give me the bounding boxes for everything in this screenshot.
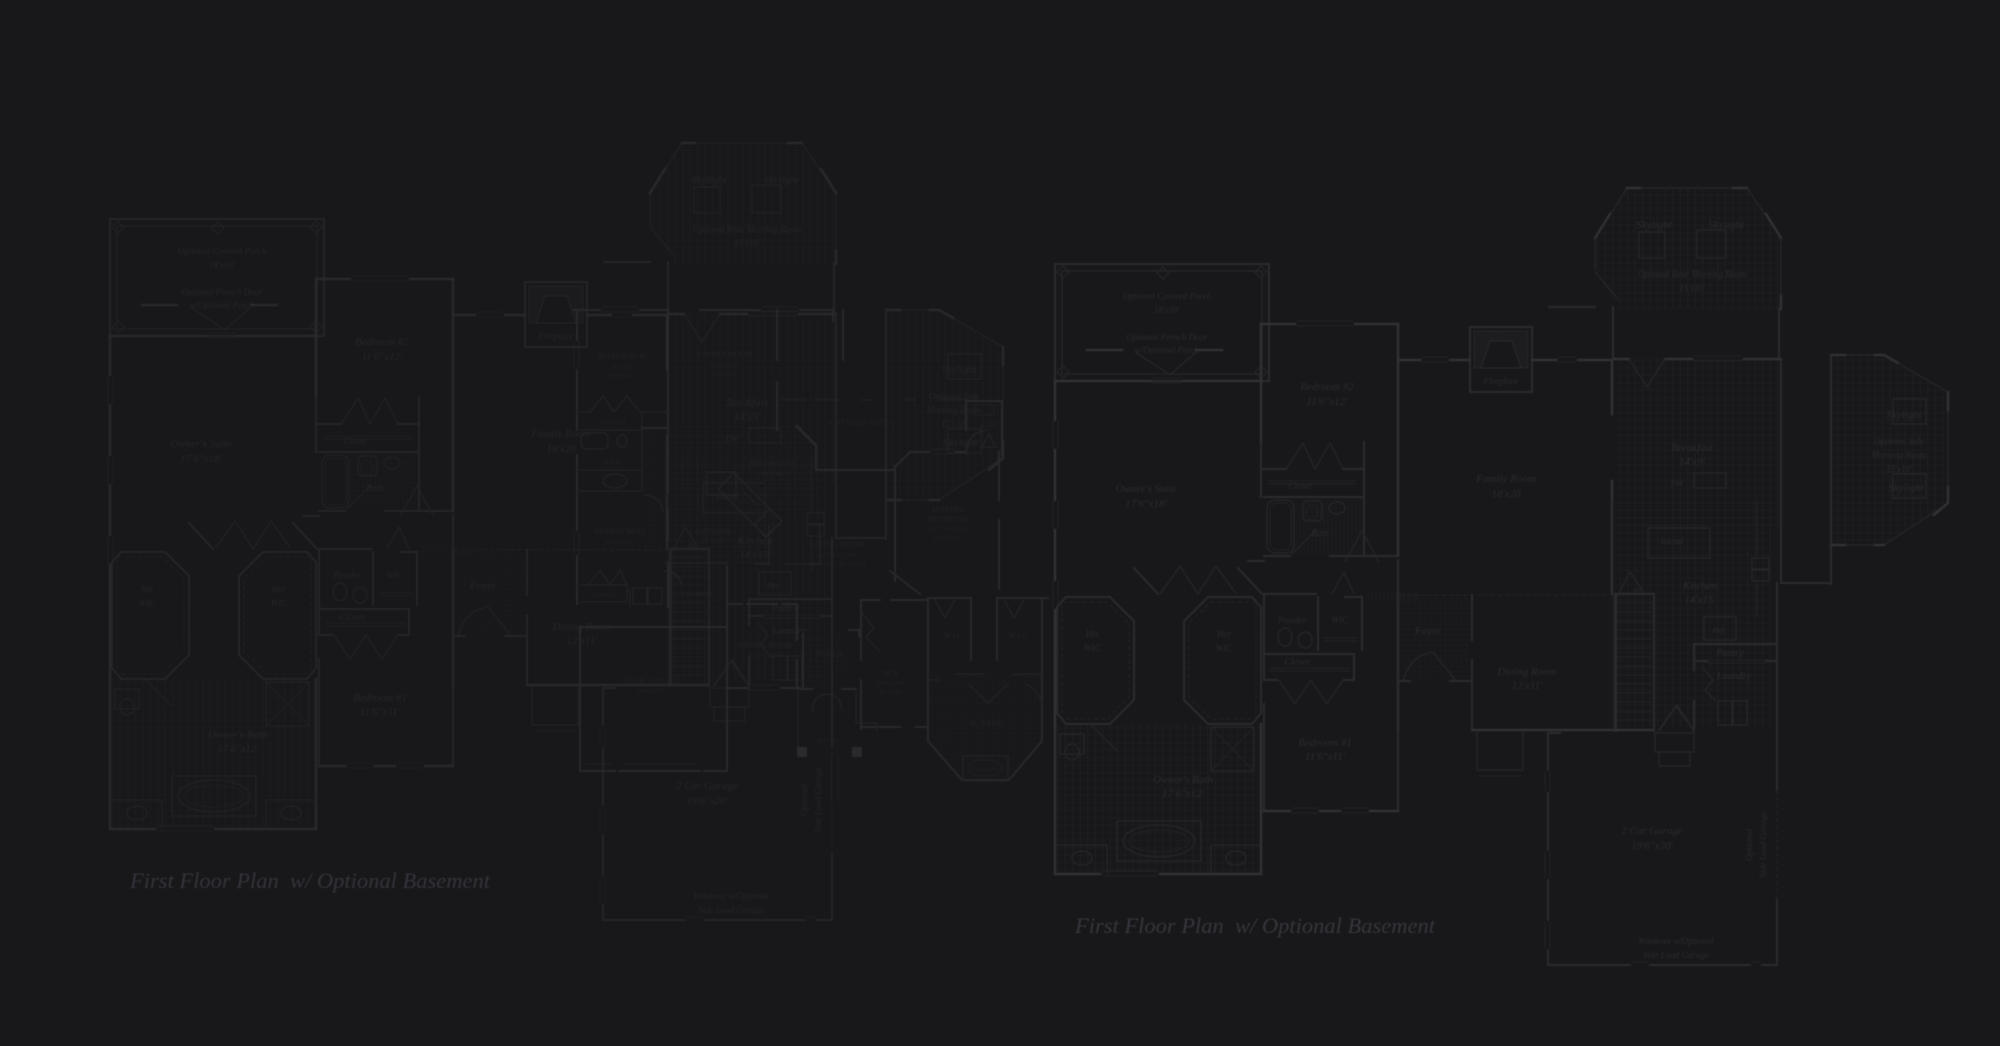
svg-text:Owner's Bath: Owner's Bath — [1153, 774, 1214, 786]
svg-text:11'6" CLG W/: 11'6" CLG W/ — [818, 552, 856, 559]
svg-text:Fireplace: Fireplace — [1483, 376, 1519, 386]
svg-text:BATH: BATH — [604, 459, 621, 466]
svg-text:Closet: Closet — [1288, 481, 1312, 491]
svg-text:CLOSET: CLOSET — [592, 592, 617, 599]
svg-text:First Floor Plan w/ Optional: First Floor Plan w/ Optional Basement — [1074, 913, 1436, 938]
svg-text:Skylight: Skylight — [1708, 219, 1744, 231]
svg-text:DINING ROOM: DINING ROOM — [738, 641, 792, 650]
svg-text:Skylight: Skylight — [1888, 482, 1924, 494]
svg-text:WIC: WIC — [1332, 615, 1349, 625]
svg-text:11'0"x14'0": 11'0"x14'0" — [750, 653, 781, 660]
svg-text:LIVING ROOM: LIVING ROOM — [810, 540, 864, 549]
svg-text:11'0"x11'0": 11'0"x11'0" — [875, 680, 905, 687]
svg-text:COVERED PATIO: COVERED PATIO — [829, 418, 891, 427]
svg-text:w/Optional Porch: w/Optional Porch — [1135, 345, 1200, 355]
svg-text:15'x10': 15'x10' — [1679, 283, 1706, 293]
svg-text:BATH: BATH — [980, 422, 997, 429]
svg-text:Foyer: Foyer — [1414, 625, 1442, 637]
svg-text:14'x15': 14'x15' — [1684, 594, 1716, 606]
svg-text:Family Room: Family Room — [1475, 473, 1536, 485]
svg-text:FOYER: FOYER — [816, 650, 843, 659]
svg-text:12'6" CLG AT BEAM: 12'6" CLG AT BEAM — [808, 561, 866, 568]
svg-text:11'0"x11'0": 11'0"x11'0" — [605, 539, 635, 546]
svg-text:19'6"x20': 19'6"x20' — [1631, 840, 1673, 852]
svg-text:17'6"x12': 17'6"x12' — [1162, 788, 1204, 800]
svg-text:11'6"x11': 11'6"x11' — [1305, 751, 1346, 763]
svg-text:BEDROOM #2: BEDROOM #2 — [597, 352, 647, 361]
svg-text:Ref.: Ref. — [1711, 625, 1725, 635]
svg-text:11'6"x12': 11'6"x12' — [1307, 396, 1349, 408]
svg-text:Bath: Bath — [1312, 528, 1329, 538]
svg-text:First Floor Plan w/ Optional: First Floor Plan w/ Optional Basement — [129, 868, 491, 893]
svg-text:Optional Side: Optional Side — [1874, 436, 1924, 446]
svg-text:Laundry: Laundry — [1716, 671, 1751, 682]
svg-text:19'0"x32'7": 19'0"x32'7" — [637, 688, 668, 695]
svg-text:NOOK: NOOK — [760, 469, 783, 478]
svg-text:11' CLG: 11' CLG — [609, 548, 631, 555]
svg-text:Her: Her — [1216, 629, 1231, 639]
svg-text:11' CLG: 11' CLG — [611, 364, 633, 371]
svg-text:12'x11': 12'x11' — [1512, 680, 1543, 692]
svg-text:CLOSET: CLOSET — [602, 419, 627, 426]
svg-text:BREAKFAST: BREAKFAST — [749, 459, 795, 468]
svg-text:Side Load Garage: Side Load Garage — [1758, 812, 1768, 878]
svg-text:Morning Room: Morning Room — [1871, 450, 1927, 460]
svg-text:11' CLG: 11' CLG — [879, 689, 901, 696]
svg-text:Breakfast: Breakfast — [1671, 442, 1714, 454]
svg-text:11'6" TRAY CLG: 11'6" TRAY CLG — [925, 526, 972, 533]
svg-text:Optional Covered Porch: Optional Covered Porch — [1123, 291, 1212, 301]
svg-text:WIC: WIC — [1084, 643, 1101, 653]
svg-text:Owner's Suite: Owner's Suite — [1115, 483, 1176, 495]
svg-text:FAMILY ROOM: FAMILY ROOM — [698, 350, 753, 359]
svg-text:Skylight: Skylight — [1636, 219, 1672, 231]
svg-text:UTILITY: UTILITY — [687, 591, 713, 598]
svg-text:MASTER: MASTER — [932, 505, 965, 514]
svg-text:Skylight: Skylight — [1886, 409, 1922, 421]
svg-text:W.I.C.: W.I.C. — [1009, 631, 1030, 640]
svg-text:11'0"x13'0": 11'0"x13'0" — [607, 373, 638, 380]
svg-text:Optional: Optional — [1744, 829, 1754, 862]
svg-text:18'x10': 18'x10' — [1154, 305, 1181, 315]
svg-text:18'x20: 18'x20 — [1491, 488, 1521, 500]
svg-text:17'6"x18': 17'6"x18' — [1125, 498, 1167, 510]
svg-text:M. BATH: M. BATH — [969, 719, 1001, 728]
svg-text:Windows w/Optional: Windows w/Optional — [1638, 936, 1714, 946]
svg-text:Dn: Dn — [1632, 587, 1641, 594]
svg-text:KITCHEN: KITCHEN — [695, 527, 730, 536]
svg-text:His: His — [1085, 629, 1099, 639]
svg-text:Side Load Garage: Side Load Garage — [1643, 950, 1709, 960]
svg-text:WIC: WIC — [1216, 643, 1233, 653]
svg-text:Optional Rear Morning Room: Optional Rear Morning Room — [1638, 269, 1747, 279]
svg-text:14'x9': 14'x9' — [1679, 456, 1706, 468]
svg-text:16'5"x13'0": 16'5"x13'0" — [933, 535, 964, 542]
svg-text:DW: DW — [1670, 479, 1685, 488]
svg-text:Pantry: Pantry — [1715, 648, 1744, 659]
svg-text:W.I.C.: W.I.C. — [944, 631, 965, 640]
svg-text:Powder: Powder — [1277, 615, 1306, 625]
svg-text:BEDROOM: BEDROOM — [928, 515, 968, 524]
svg-text:16'5"x19'5": 16'5"x19'5" — [710, 362, 741, 369]
svg-text:Bedroom #2: Bedroom #2 — [1300, 381, 1354, 393]
svg-text:Kitchen: Kitchen — [1682, 580, 1718, 592]
svg-text:Island: Island — [1660, 536, 1684, 546]
svg-text:Bedroom #1: Bedroom #1 — [1298, 737, 1352, 749]
svg-text:SUN BATH: SUN BATH — [972, 767, 999, 773]
svg-text:2 Car Garage: 2 Car Garage — [1621, 825, 1683, 837]
svg-text:15'x10': 15'x10' — [1886, 464, 1913, 474]
svg-text:DEN: DEN — [882, 669, 899, 678]
svg-text:Closet: Closet — [1284, 657, 1310, 668]
svg-text:ENTRY: ENTRY — [818, 738, 840, 745]
svg-text:11' CLG: 11' CLG — [714, 371, 736, 378]
svg-text:Optional French Door: Optional French Door — [1126, 332, 1208, 342]
svg-text:Dining Room: Dining Room — [1497, 666, 1557, 678]
svg-text:BEDROOM #3: BEDROOM #3 — [595, 527, 645, 536]
svg-text:11' CLG: 11' CLG — [702, 538, 724, 545]
svg-text:3 CAR GARAGE: 3 CAR GARAGE — [623, 676, 681, 685]
